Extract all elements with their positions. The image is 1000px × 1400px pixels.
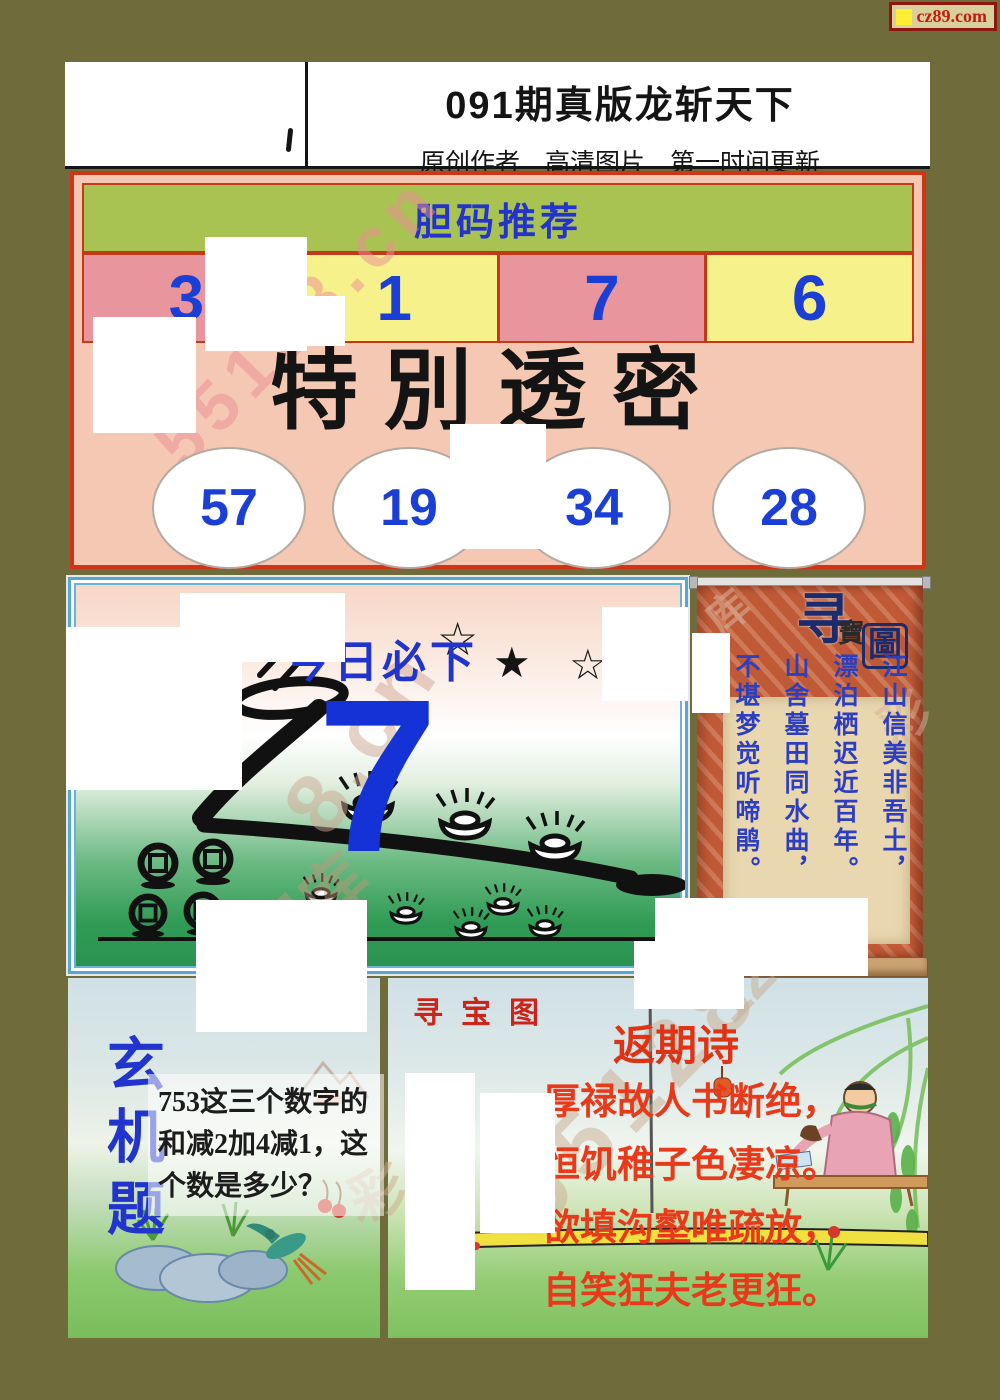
censor-block — [634, 941, 744, 1009]
censor-block — [196, 900, 367, 1032]
censor-block — [205, 237, 307, 351]
page-title: 091期真版龙斩天下 — [310, 74, 930, 129]
xunbao-title: 寻宝图 — [413, 988, 557, 1032]
danma-cell: 6 — [707, 255, 912, 341]
danma-number: 6 — [792, 261, 828, 335]
header-divider — [305, 62, 308, 166]
erased-logo-mark — [286, 128, 293, 152]
poem-line: 恒饥稚子色凄凉。 — [543, 1133, 839, 1196]
censor-block — [602, 607, 688, 701]
toumi-number: 57 — [200, 478, 258, 538]
censor-block — [300, 296, 345, 346]
toumi-number: 19 — [380, 478, 438, 538]
site-badge[interactable]: cz89.com — [889, 2, 997, 31]
header-box: 091期真版龙斩天下 原创作者 高清图片 第一时间更新 — [65, 62, 930, 169]
today-number: 7 — [317, 668, 438, 886]
danma-cell: 7 — [500, 255, 708, 341]
censor-block — [692, 633, 730, 713]
toumi-number: 34 — [565, 478, 623, 538]
danma-title: 胆码推荐 — [414, 191, 582, 246]
xuanji-question: 753这三个数字的和减2加4减1，这个数是多少？ — [148, 1074, 384, 1216]
toumi-number: 28 — [760, 478, 818, 538]
header-right: 091期真版龙斩天下 原创作者 高清图片 第一时间更新 — [310, 62, 930, 166]
poem-line: 厚禄故人书断绝， — [543, 1070, 839, 1133]
scroll-roller-cap — [922, 576, 931, 589]
poem-lines: 厚禄故人书断绝， 恒饥稚子色凄凉。 欲填沟壑唯疏放， 自笑狂夫老更狂。 — [543, 1070, 839, 1322]
censor-block — [480, 1093, 555, 1233]
badge-yellow-icon — [896, 9, 912, 25]
xuanji-box: 玄机题 753这三个数字的和减2加4减1，这个数是多少？ — [68, 978, 380, 1338]
poem-title: 返期诗 — [613, 1012, 739, 1073]
poem-column: 江山信美非吾土， — [874, 653, 910, 945]
scroll-title-small: 寶 — [838, 613, 864, 650]
poem-line: 自笑狂夫老更狂。 — [543, 1259, 839, 1322]
toumi-ball: 57 — [152, 447, 306, 569]
censor-block — [405, 1073, 475, 1290]
censor-block — [450, 424, 546, 549]
star-outline-icon: ☆ — [569, 640, 607, 689]
poem-line: 欲填沟壑唯疏放， — [543, 1196, 839, 1259]
censor-block — [66, 627, 242, 790]
danma-number: 1 — [376, 261, 412, 335]
danma-number: 7 — [584, 261, 620, 335]
toumi-ball: 28 — [712, 447, 866, 569]
page-root: { "badge": { "label": "cz89.com" }, "hea… — [0, 0, 1000, 1400]
censor-block — [93, 317, 196, 433]
badge-label: cz89.com — [917, 6, 987, 27]
star-filled-icon: ★ — [493, 638, 531, 687]
